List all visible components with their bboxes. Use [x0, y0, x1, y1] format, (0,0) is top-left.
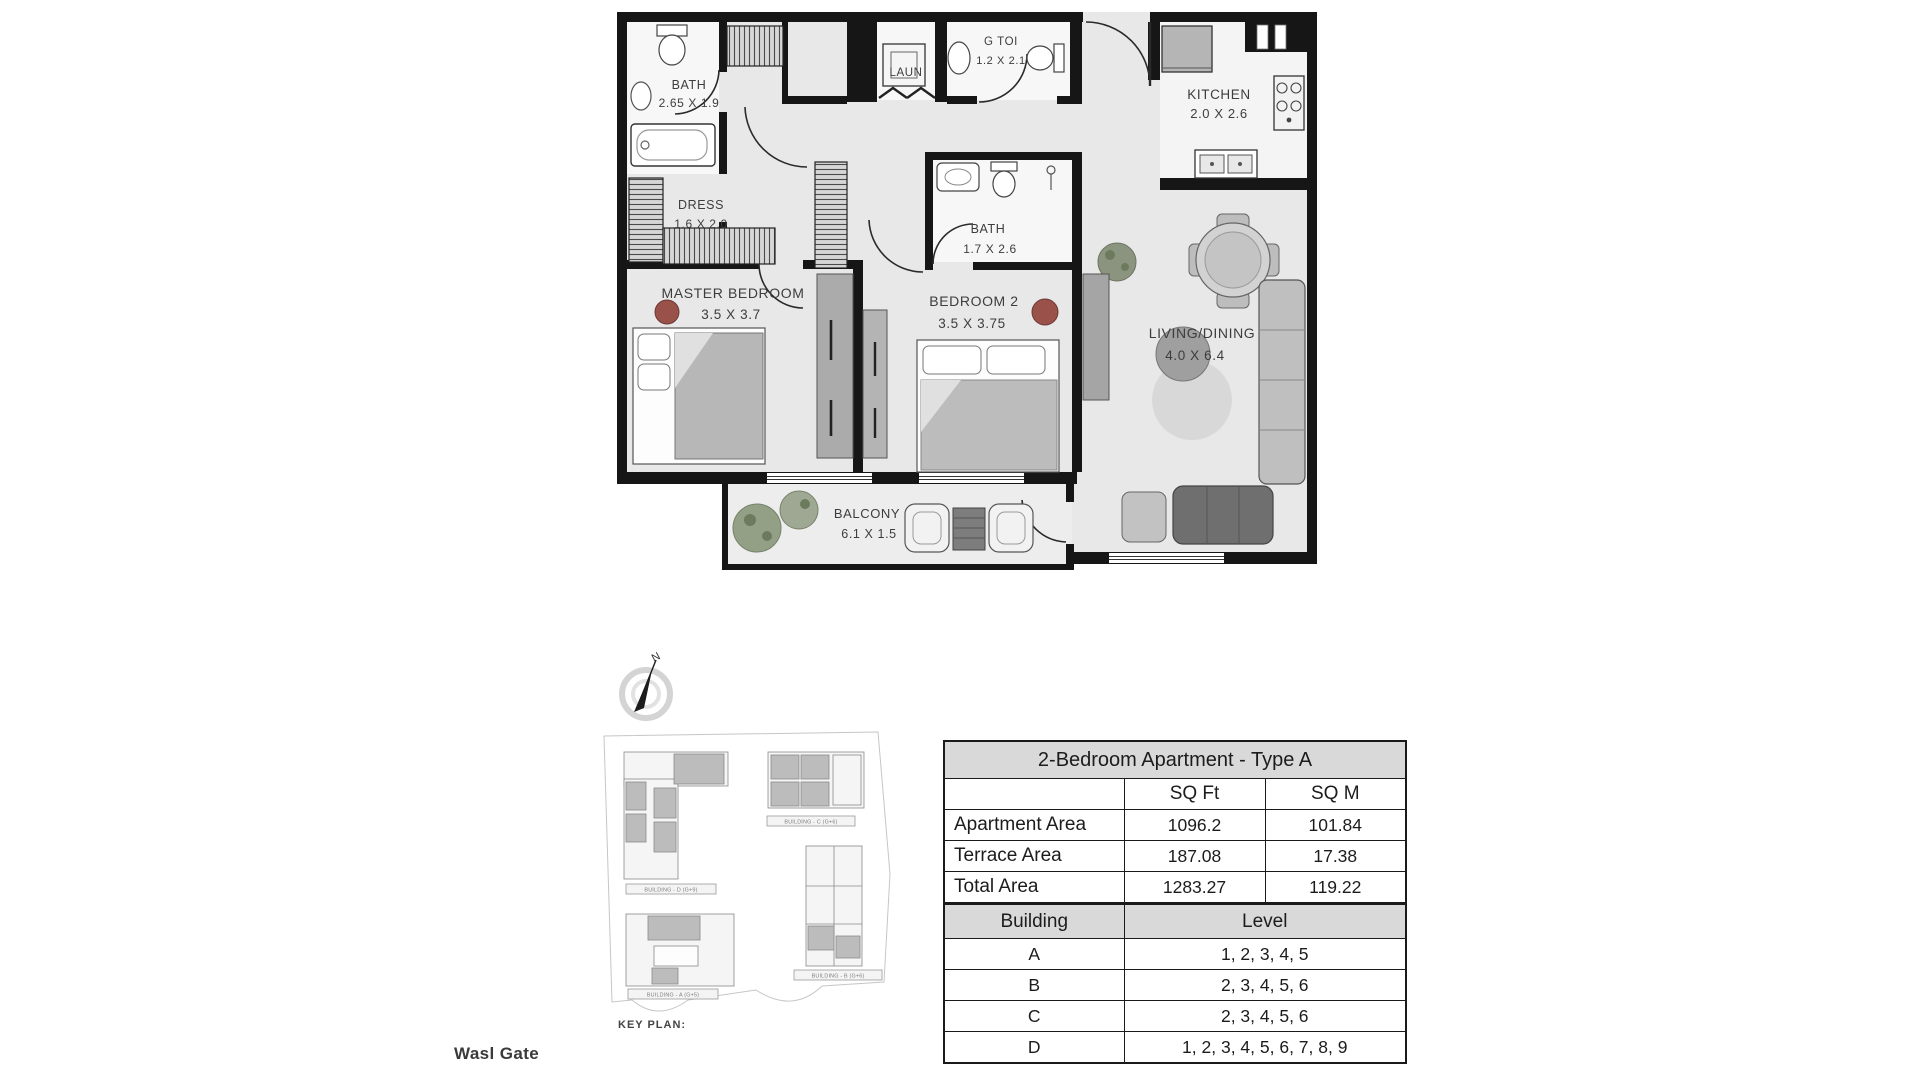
apartment-area-sqm: 101.84 [1265, 810, 1406, 841]
room-label-kitchen: KITCHEN [1187, 87, 1250, 102]
room-label-bath1: BATH [672, 78, 707, 92]
terrace-area-sqm: 17.38 [1265, 841, 1406, 872]
total-area-sqm: 119.22 [1265, 872, 1406, 904]
building-a-levels: 1, 2, 3, 4, 5 [1124, 939, 1406, 970]
room-dims-guest-toilet: 1.2 X 2.1 [976, 55, 1025, 67]
room-label-bath2: BATH [971, 222, 1006, 236]
key-plan-label-building-c: BUILDING - C (G+6) [784, 820, 837, 826]
area-table-title: 2-Bedroom Apartment - Type A [944, 741, 1406, 779]
room-dims-kitchen: 2.0 X 2.6 [1190, 106, 1247, 121]
key-plan-building-a [626, 914, 734, 999]
level-table: Building Level A 1, 2, 3, 4, 5 B 2, 3, 4… [943, 903, 1405, 1064]
table-row: Apartment Area 1096.2 101.84 [944, 810, 1406, 841]
apartment-area-label: Apartment Area [944, 810, 1124, 841]
building-c-label: C [944, 1001, 1124, 1032]
key-plan-building-d [624, 752, 728, 894]
project-name-label: Wasl Gate [454, 1044, 539, 1064]
key-plan-label-building-a: BUILDING - A (G+5) [647, 993, 699, 999]
key-plan-building-c [767, 752, 864, 826]
room-dims-bath1: 2.65 X 1.9 [659, 96, 720, 110]
key-plan: BUILDING - D (G+9) BUILDING - C (G+6) BU… [588, 724, 910, 1046]
room-label-laundry: LAUN [889, 67, 922, 79]
room-dims-balcony: 6.1 X 1.5 [841, 527, 896, 541]
building-d-label: D [944, 1032, 1124, 1064]
room-label-master-bedroom: MASTER BEDROOM [662, 285, 805, 301]
apartment-area-sqft: 1096.2 [1124, 810, 1265, 841]
room-dims-dress: 1.6 X 2.0 [674, 217, 727, 231]
room-dims-bedroom2: 3.5 X 3.75 [938, 316, 1006, 331]
building-a-label: A [944, 939, 1124, 970]
floor-plan: BATH 2.65 X 1.9 DRESS 1.6 X 2.0 LAUN G T… [617, 12, 1317, 578]
level-table-col-level: Level [1124, 904, 1406, 939]
table-row: A 1, 2, 3, 4, 5 [944, 939, 1406, 970]
building-c-levels: 2, 3, 4, 5, 6 [1124, 1001, 1406, 1032]
area-table: 2-Bedroom Apartment - Type A SQ Ft SQ M … [943, 740, 1405, 904]
room-label-living-dining: LIVING/DINING [1149, 325, 1256, 341]
room-label-dress: DRESS [678, 198, 724, 212]
room-dims-living-dining: 4.0 X 6.4 [1165, 348, 1224, 363]
table-row: D 1, 2, 3, 4, 5, 6, 7, 8, 9 [944, 1032, 1406, 1064]
building-b-levels: 2, 3, 4, 5, 6 [1124, 970, 1406, 1001]
room-dims-bath2: 1.7 X 2.6 [963, 242, 1016, 256]
building-b-label: B [944, 970, 1124, 1001]
table-row: Total Area 1283.27 119.22 [944, 872, 1406, 904]
compass-north-label: N [650, 650, 663, 664]
key-plan-title: KEY PLAN: [618, 1019, 686, 1031]
total-area-sqft: 1283.27 [1124, 872, 1265, 904]
area-table-col-sqm: SQ M [1265, 779, 1406, 810]
table-row: B 2, 3, 4, 5, 6 [944, 970, 1406, 1001]
key-plan-label-building-d: BUILDING - D (G+9) [644, 888, 697, 894]
building-d-levels: 1, 2, 3, 4, 5, 6, 7, 8, 9 [1124, 1032, 1406, 1064]
level-table-col-building: Building [944, 904, 1124, 939]
room-label-guest-toilet: G TOI [984, 36, 1018, 48]
terrace-area-label: Terrace Area [944, 841, 1124, 872]
table-row: Terrace Area 187.08 17.38 [944, 841, 1406, 872]
key-plan-building-b [794, 846, 882, 980]
total-area-label: Total Area [944, 872, 1124, 904]
area-table-corner-cell [944, 779, 1124, 810]
room-label-balcony: BALCONY [834, 506, 900, 521]
key-plan-label-building-b: BUILDING - B (G+6) [812, 974, 865, 980]
room-dims-master-bedroom: 3.5 X 3.7 [701, 307, 760, 322]
terrace-area-sqft: 187.08 [1124, 841, 1265, 872]
room-label-bedroom2: BEDROOM 2 [929, 293, 1018, 309]
area-table-col-sqft: SQ Ft [1124, 779, 1265, 810]
table-row: C 2, 3, 4, 5, 6 [944, 1001, 1406, 1032]
